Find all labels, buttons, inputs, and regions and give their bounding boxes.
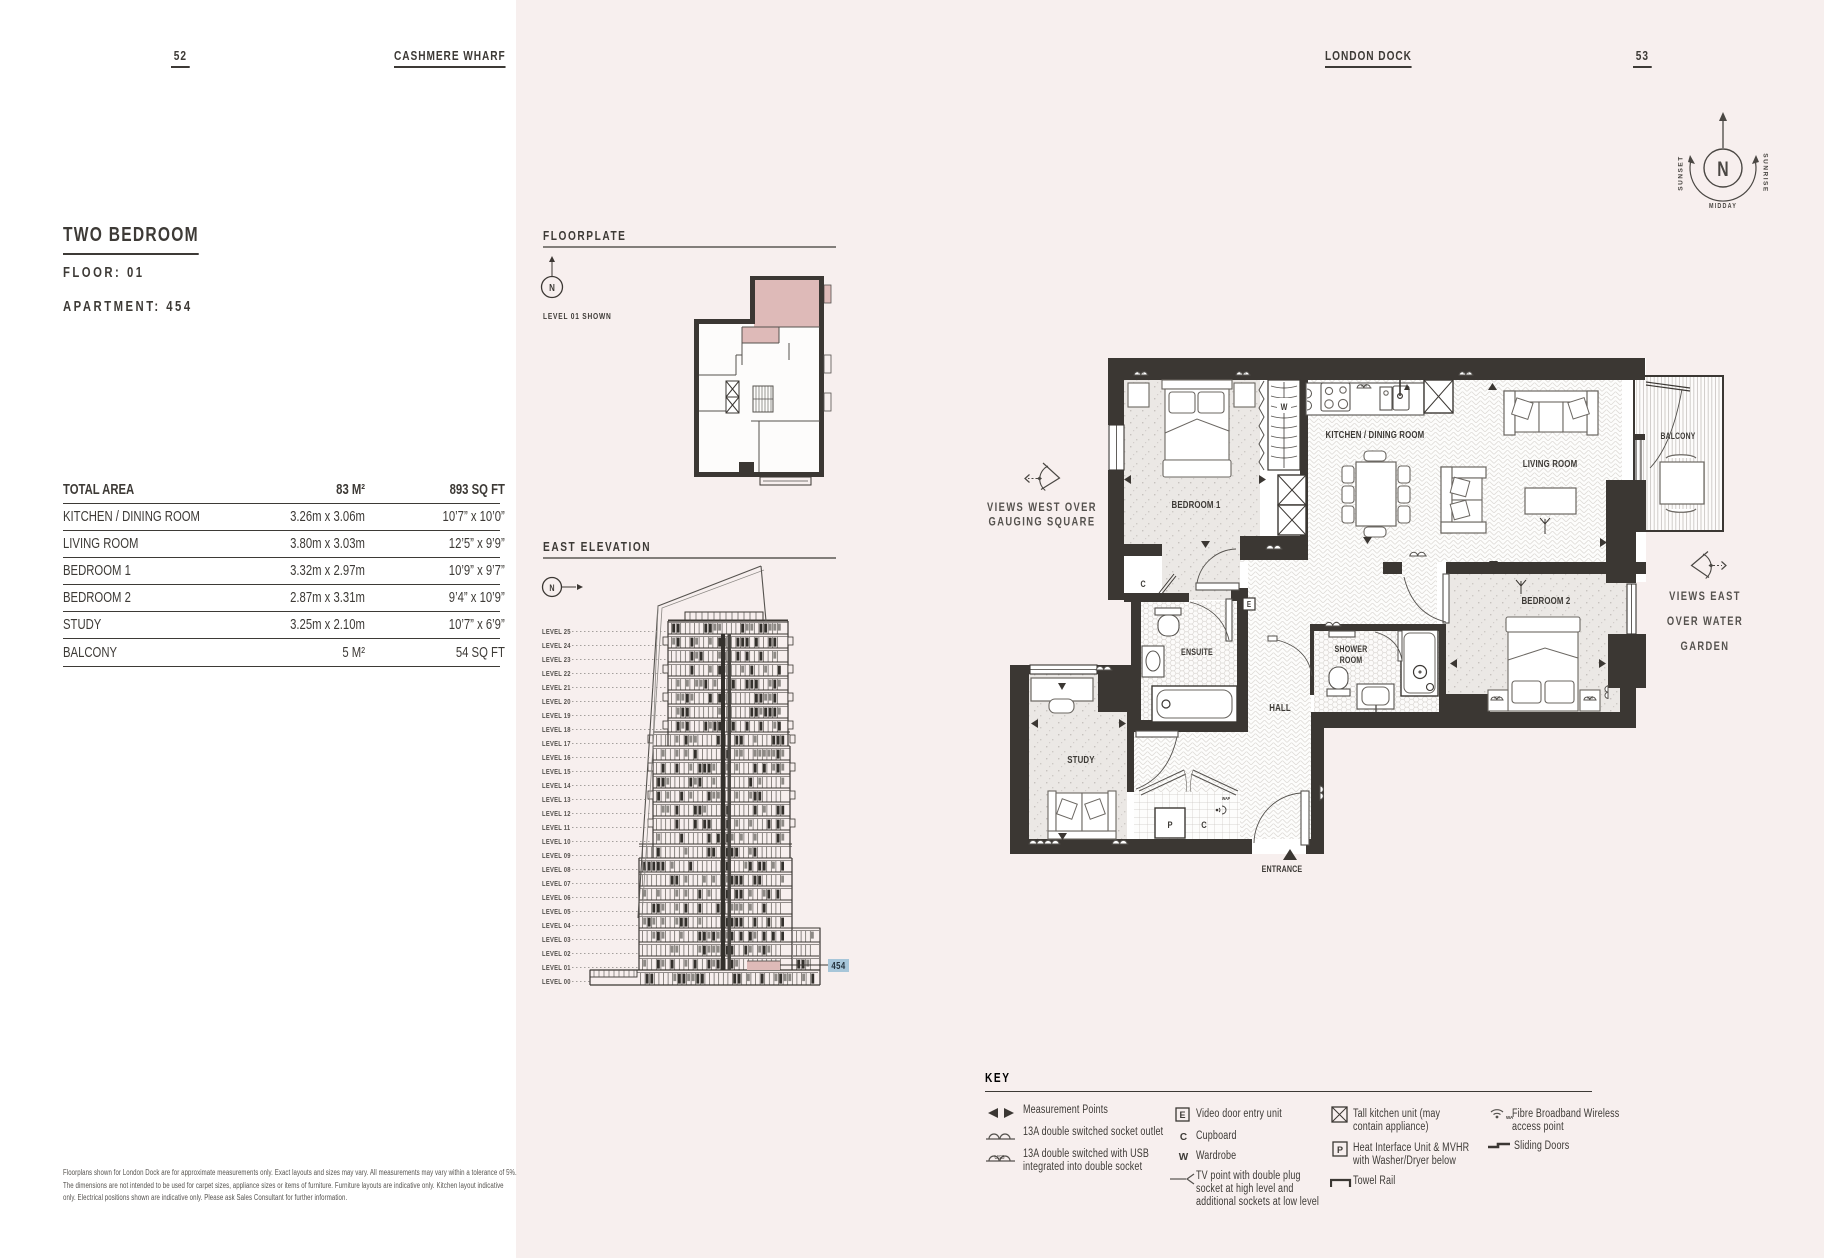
svg-text:BALCONY: BALCONY — [1661, 431, 1696, 441]
svg-text:VIEWS WEST OVER: VIEWS WEST OVER — [987, 501, 1097, 514]
svg-text:LEVEL 18: LEVEL 18 — [542, 726, 571, 734]
svg-text:EAST ELEVATION: EAST ELEVATION — [543, 540, 651, 554]
svg-text:VIEWS EAST: VIEWS EAST — [1669, 590, 1741, 603]
svg-text:USB: USB — [1463, 371, 1470, 375]
svg-text:LEVEL 25: LEVEL 25 — [542, 628, 571, 636]
svg-text:USB: USB — [1494, 696, 1501, 700]
svg-text:LEVEL 20: LEVEL 20 — [542, 698, 571, 706]
svg-text:LEVEL 10: LEVEL 10 — [542, 838, 571, 846]
svg-text:SHOWER: SHOWER — [1335, 643, 1368, 654]
svg-text:E: E — [1247, 599, 1251, 609]
svg-text:LEVEL 03: LEVEL 03 — [542, 936, 571, 944]
svg-text:W: W — [1281, 402, 1288, 412]
svg-text:LEVEL 01: LEVEL 01 — [542, 964, 571, 972]
svg-text:N: N — [549, 583, 554, 593]
svg-text:P: P — [1167, 819, 1172, 830]
svg-text:ROOM: ROOM — [1340, 654, 1363, 665]
svg-text:454: 454 — [831, 960, 845, 971]
svg-text:FLOORPLATE: FLOORPLATE — [543, 229, 626, 243]
svg-text:LEVEL 00: LEVEL 00 — [542, 978, 571, 986]
svg-text:SUNSET: SUNSET — [1678, 155, 1685, 190]
svg-text:BEDROOM 2: BEDROOM 2 — [1521, 595, 1570, 606]
svg-text:OVER WATER: OVER WATER — [1667, 615, 1743, 628]
svg-text:LEVEL 01 SHOWN: LEVEL 01 SHOWN — [543, 311, 612, 321]
svg-text:LEVEL 22: LEVEL 22 — [542, 670, 571, 678]
svg-text:GAUGING SQUARE: GAUGING SQUARE — [989, 515, 1096, 528]
svg-text:BEDROOM 1: BEDROOM 1 — [1172, 499, 1221, 510]
svg-text:MIDDAY: MIDDAY — [1709, 202, 1737, 210]
svg-text:LEVEL 14: LEVEL 14 — [542, 782, 571, 790]
svg-text:LEVEL 21: LEVEL 21 — [542, 684, 571, 692]
svg-text:N: N — [549, 282, 555, 293]
svg-text:LEVEL 11: LEVEL 11 — [542, 824, 570, 832]
svg-text:LEVEL 17: LEVEL 17 — [542, 740, 571, 748]
svg-text:C: C — [1140, 579, 1145, 589]
svg-text:LEVEL 07: LEVEL 07 — [542, 880, 571, 888]
svg-text:LEVEL 04: LEVEL 04 — [542, 922, 571, 930]
svg-text:LEVEL 13: LEVEL 13 — [542, 796, 571, 804]
svg-text:LEVEL 08: LEVEL 08 — [542, 866, 571, 874]
svg-text:GARDEN: GARDEN — [1681, 640, 1730, 653]
svg-text:LIVING ROOM: LIVING ROOM — [1523, 458, 1578, 469]
svg-text:ENSUITE: ENSUITE — [1181, 646, 1213, 657]
svg-text:ENTRANCE: ENTRANCE — [1262, 863, 1303, 874]
svg-text:C: C — [1201, 819, 1206, 830]
svg-text:N: N — [1717, 157, 1728, 181]
svg-text:LEVEL 06: LEVEL 06 — [542, 894, 571, 902]
svg-text:SUNRISE: SUNRISE — [1762, 153, 1769, 192]
svg-text:LEVEL 05: LEVEL 05 — [542, 908, 571, 916]
svg-text:WAP: WAP — [1222, 796, 1230, 802]
svg-text:STUDY: STUDY — [1067, 754, 1095, 765]
svg-text:LEVEL 16: LEVEL 16 — [542, 754, 571, 762]
svg-text:LEVEL 24: LEVEL 24 — [542, 642, 571, 650]
svg-text:USB: USB — [1240, 371, 1247, 375]
svg-text:USB: USB — [1138, 371, 1145, 375]
svg-text:LEVEL 12: LEVEL 12 — [542, 810, 571, 818]
svg-text:USB: USB — [1587, 696, 1594, 700]
svg-text:KITCHEN / DINING ROOM: KITCHEN / DINING ROOM — [1326, 429, 1425, 440]
svg-text:LEVEL 23: LEVEL 23 — [542, 656, 571, 664]
svg-text:LEVEL 19: LEVEL 19 — [542, 712, 571, 720]
svg-text:HALL: HALL — [1269, 702, 1291, 713]
svg-text:LEVEL 02: LEVEL 02 — [542, 950, 571, 958]
svg-text:LEVEL 15: LEVEL 15 — [542, 768, 571, 776]
svg-text:LEVEL 09: LEVEL 09 — [542, 852, 571, 860]
svg-text:USB: USB — [1361, 384, 1368, 388]
